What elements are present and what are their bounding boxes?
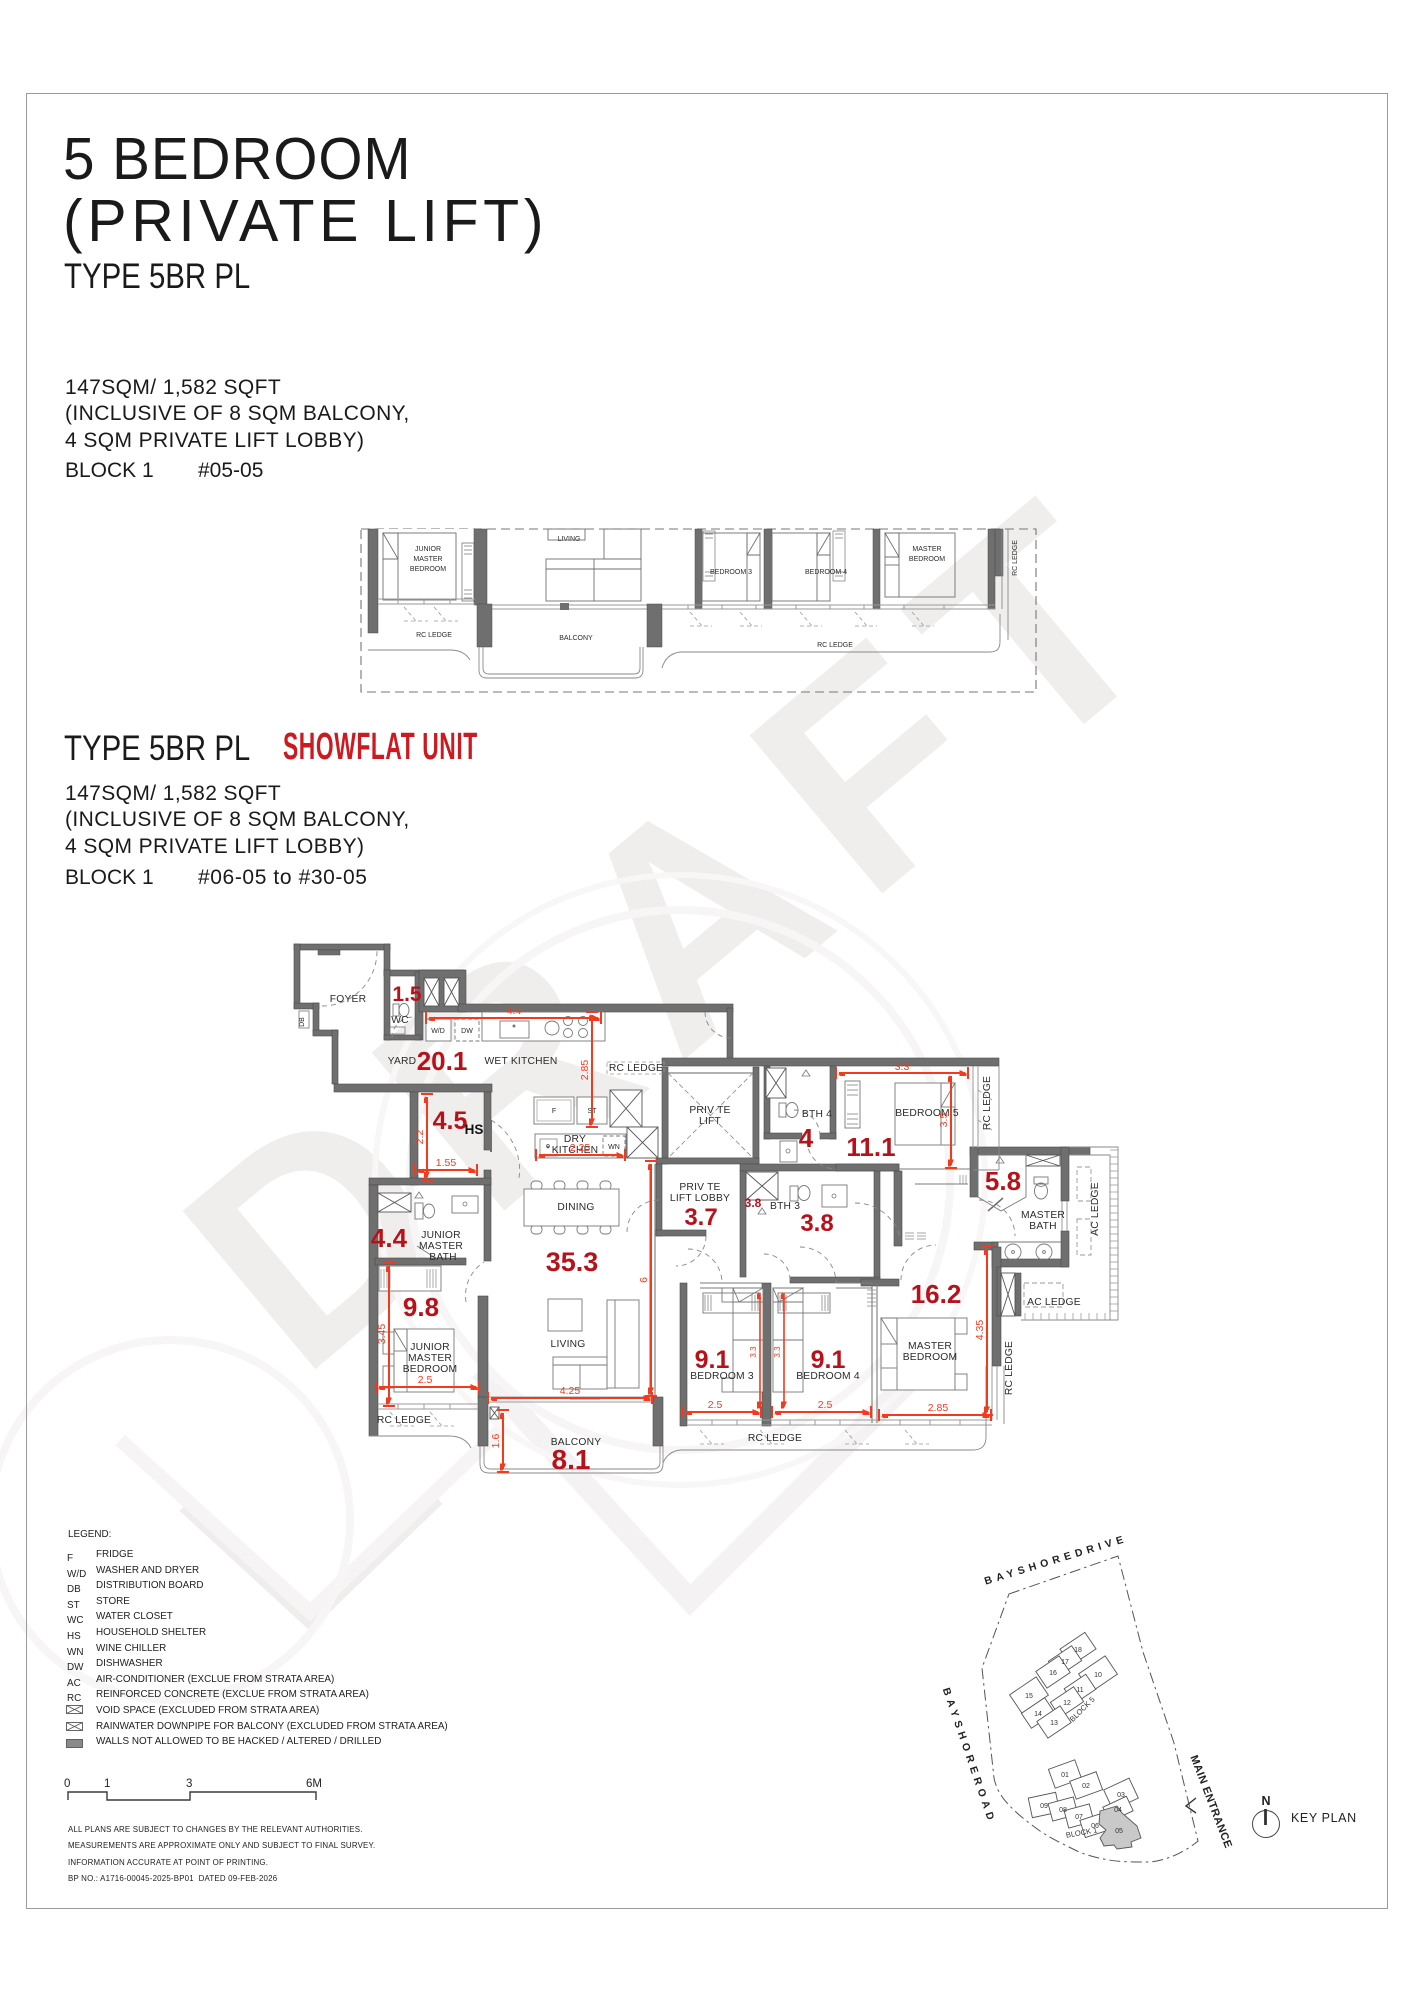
svg-text:3: 3 [186,1778,192,1790]
svg-text:RC LEDGE: RC LEDGE [609,1063,663,1074]
svg-text:3.5: 3.5 [938,1113,950,1128]
svg-text:08: 08 [1059,1807,1067,1814]
svg-text:BTH 4: BTH 4 [802,1109,832,1120]
svg-text:BAYSHOREDRIVE: BAYSHOREDRIVE [983,1533,1129,1588]
svg-text:17: 17 [1061,1659,1069,1666]
svg-text:WET KITCHEN: WET KITCHEN [485,1056,558,1067]
svg-text:LIVING: LIVING [551,1339,586,1350]
svg-text:9.1: 9.1 [695,1346,730,1374]
svg-text:16: 16 [1049,1670,1057,1677]
svg-text:4.4: 4.4 [507,1005,522,1017]
svg-text:4: 4 [799,1123,814,1153]
svg-text:BAYSHOREROAD: BAYSHOREROAD [940,1686,998,1826]
svg-text:BATH: BATH [1029,1221,1057,1232]
svg-text:BEDROOM: BEDROOM [903,1352,958,1363]
svg-text:LIVING: LIVING [558,536,581,543]
svg-text:BEDROOM 4: BEDROOM 4 [805,569,847,576]
svg-text:2.5: 2.5 [418,1374,433,1386]
svg-text:WN: WN [608,1144,620,1151]
svg-text:9.8: 9.8 [403,1292,439,1322]
svg-text:WC: WC [391,1015,409,1026]
svg-text:MASTER: MASTER [408,1353,452,1364]
svg-text:BEDROOM: BEDROOM [410,566,446,573]
svg-text:3.45: 3.45 [376,1324,388,1345]
svg-text:MAIN ENTRANCE: MAIN ENTRANCE [1187,1754,1234,1851]
svg-text:BATH: BATH [429,1252,457,1263]
svg-text:03: 03 [1117,1792,1125,1799]
svg-text:20.1: 20.1 [417,1046,468,1076]
svg-text:o: o [546,1143,550,1150]
svg-text:3.8: 3.8 [745,1196,762,1210]
svg-text:15: 15 [1025,1693,1033,1700]
svg-text:W/D: W/D [431,1028,445,1035]
svg-text:12: 12 [1063,1700,1071,1707]
svg-text:01: 01 [1061,1772,1069,1779]
svg-text:3.7: 3.7 [684,1204,717,1231]
svg-text:14: 14 [1034,1711,1042,1718]
svg-text:RC LEDGE: RC LEDGE [377,1415,431,1426]
svg-text:BEDROOM: BEDROOM [909,556,945,563]
svg-text:4.5: 4.5 [433,1107,468,1135]
svg-text:2.85: 2.85 [928,1402,949,1414]
svg-text:6: 6 [638,1277,650,1283]
svg-text:0: 0 [64,1778,70,1790]
svg-text:RC LEDGE: RC LEDGE [416,632,452,639]
svg-text:11.1: 11.1 [846,1132,895,1162]
svg-text:3.3: 3.3 [773,1346,782,1358]
svg-text:MASTER: MASTER [413,556,442,563]
svg-text:YARD: YARD [388,1056,417,1067]
svg-text:2.5: 2.5 [818,1399,833,1411]
svg-text:35.3: 35.3 [546,1247,599,1277]
svg-text:RC LEDGE: RC LEDGE [1004,1341,1015,1395]
svg-text:2.5: 2.5 [708,1399,723,1411]
svg-text:1: 1 [104,1778,110,1790]
svg-text:JUNIOR: JUNIOR [421,1230,461,1241]
svg-text:3.3: 3.3 [895,1061,910,1073]
svg-text:11: 11 [1076,1687,1083,1694]
svg-text:LIFT: LIFT [699,1116,721,1127]
svg-text:BALCONY: BALCONY [559,635,593,642]
svg-text:18: 18 [1074,1647,1082,1654]
svg-text:FOYER: FOYER [330,994,366,1005]
svg-text:AC LEDGE: AC LEDGE [1027,1297,1081,1308]
svg-text:BEDROOM 3: BEDROOM 3 [710,569,752,576]
svg-text:HS: HS [465,1122,484,1137]
svg-text:N: N [1261,1794,1270,1808]
svg-text:2.2: 2.2 [414,1130,426,1145]
svg-text:KEY PLAN: KEY PLAN [1291,1811,1357,1825]
svg-text:DINING: DINING [557,1202,594,1213]
svg-text:02: 02 [1082,1783,1090,1790]
svg-text:MASTER: MASTER [912,546,941,553]
svg-text:1.6: 1.6 [490,1434,502,1449]
svg-text:2.85: 2.85 [579,1060,591,1081]
svg-text:1.55: 1.55 [436,1157,457,1169]
svg-text:LIFT LOBBY: LIFT LOBBY [670,1193,730,1204]
svg-text:PRIV TE: PRIV TE [689,1105,730,1116]
svg-text:9.1: 9.1 [811,1346,846,1374]
svg-text:MASTER: MASTER [908,1341,952,1352]
svg-text:05: 05 [1115,1828,1123,1835]
svg-text:F: F [552,1108,556,1115]
svg-text:JUNIOR: JUNIOR [410,1342,450,1353]
svg-text:2.25: 2.25 [570,1142,591,1154]
svg-text:09: 09 [1040,1803,1048,1810]
svg-text:RC LEDGE: RC LEDGE [1012,540,1019,576]
svg-text:04: 04 [1114,1807,1122,1814]
svg-text:MASTER: MASTER [1021,1210,1065,1221]
svg-text:8.1: 8.1 [552,1444,591,1475]
svg-text:RC LEDGE: RC LEDGE [982,1076,993,1130]
svg-text:16.2: 16.2 [911,1279,962,1309]
svg-text:4.35: 4.35 [974,1320,986,1341]
svg-text:MASTER: MASTER [419,1241,463,1252]
svg-text:JUNIOR: JUNIOR [415,546,441,553]
svg-text:07: 07 [1075,1814,1083,1821]
svg-text:3.8: 3.8 [800,1210,833,1237]
svg-text:5.8: 5.8 [985,1166,1021,1196]
svg-text:1.5: 1.5 [392,983,422,1006]
svg-text:DB: DB [299,1017,306,1027]
svg-text:RC LEDGE: RC LEDGE [817,642,853,649]
svg-text:RC LEDGE: RC LEDGE [748,1433,802,1444]
svg-text:PRIV TE: PRIV TE [679,1182,720,1193]
svg-text:4.4: 4.4 [371,1223,408,1253]
svg-text:BTH 3: BTH 3 [770,1201,800,1212]
svg-text:4.25: 4.25 [560,1385,581,1397]
svg-text:AC LEDGE: AC LEDGE [1090,1182,1101,1236]
svg-text:6M: 6M [306,1778,322,1790]
svg-text:13: 13 [1050,1720,1058,1727]
svg-text:DW: DW [461,1028,473,1035]
svg-text:10: 10 [1094,1672,1102,1679]
svg-text:3.3: 3.3 [749,1346,758,1358]
